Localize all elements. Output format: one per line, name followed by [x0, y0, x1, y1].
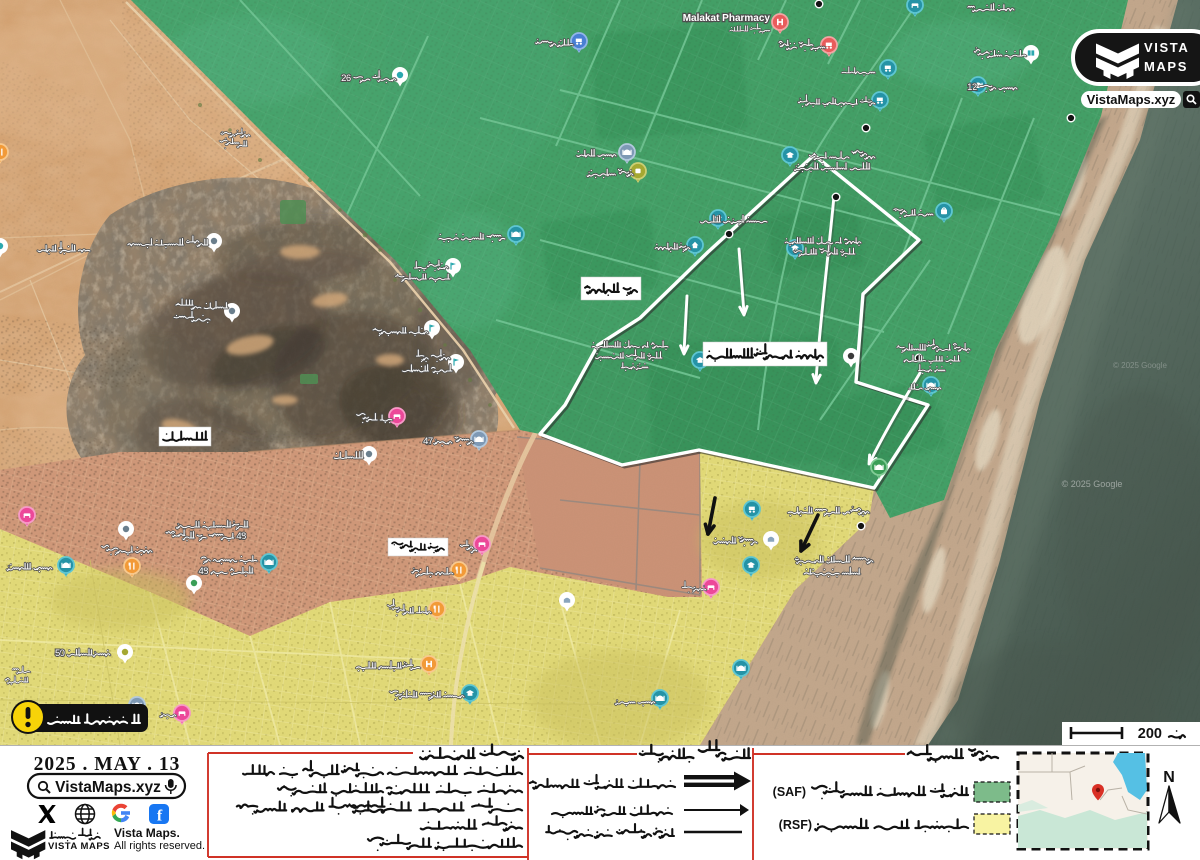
svg-text:© 2025 Google: © 2025 Google [1113, 361, 1167, 370]
svg-text:1: 1 [967, 82, 972, 93]
svg-text:4: 4 [199, 566, 204, 577]
svg-text:8: 8 [241, 531, 246, 542]
svg-text:N: N [1163, 769, 1175, 786]
svg-text:2: 2 [341, 73, 346, 84]
svg-text:All rights reserved.: All rights reserved. [114, 840, 205, 852]
svg-text:2025 . MAY . 13: 2025 . MAY . 13 [34, 754, 181, 775]
svg-text:VISTA MAPS: VISTA MAPS [48, 841, 110, 852]
svg-text:(RSF): (RSF) [779, 818, 812, 832]
svg-text:f: f [157, 808, 163, 825]
svg-text:4: 4 [236, 531, 241, 542]
svg-text:VISTA: VISTA [1144, 40, 1189, 55]
svg-text:Vista Maps.: Vista Maps. [114, 826, 180, 840]
svg-text:200: 200 [1138, 726, 1162, 742]
svg-text:8: 8 [203, 566, 208, 577]
svg-text:5: 5 [55, 648, 60, 659]
svg-text:Malakat Pharmacy: Malakat Pharmacy [683, 13, 771, 24]
svg-text:VistaMaps.xyz: VistaMaps.xyz [55, 779, 161, 796]
svg-text:© 2025 Google: © 2025 Google [1062, 479, 1123, 489]
svg-text:4: 4 [423, 436, 428, 447]
svg-text:0: 0 [60, 648, 65, 659]
svg-text:MAPS: MAPS [1144, 59, 1188, 74]
svg-text:6: 6 [346, 73, 351, 84]
svg-text:7: 7 [428, 436, 433, 447]
svg-text:2: 2 [972, 82, 977, 93]
svg-text:VistaMaps.xyz: VistaMaps.xyz [1087, 92, 1176, 107]
svg-text:(SAF): (SAF) [773, 785, 806, 799]
